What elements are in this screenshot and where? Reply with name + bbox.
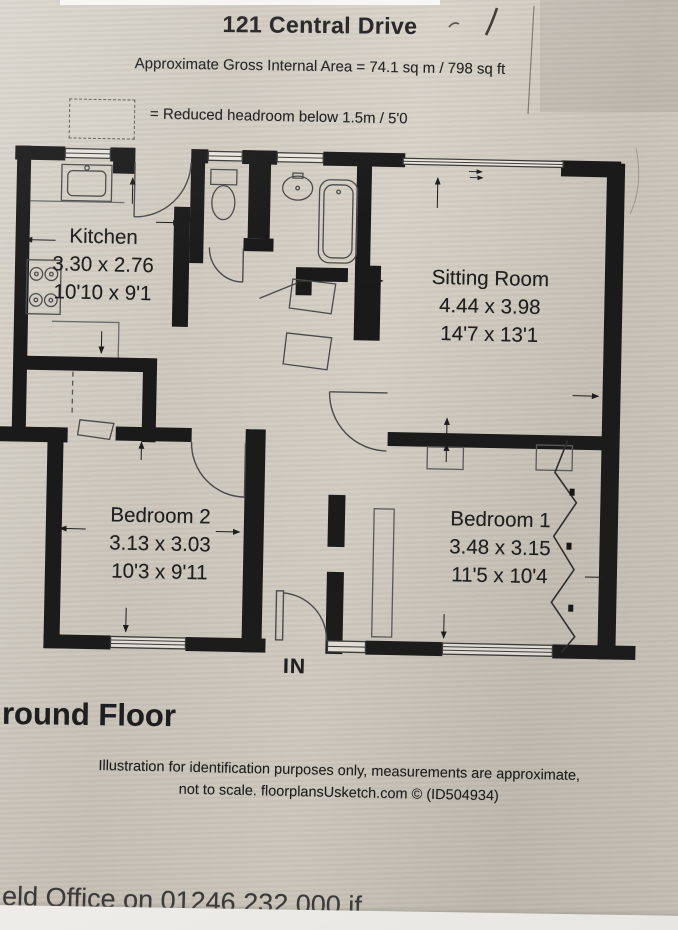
door-arc (283, 593, 328, 641)
entrance-door (276, 591, 284, 640)
room-name: Bedroom 2 (73, 501, 249, 533)
room-label-bedroom-1: Bedroom 1 3.48 x 3.15 11'5 x 10'4 (412, 505, 589, 592)
door-arc (190, 442, 245, 497)
counter-edge (51, 321, 119, 357)
room-label-sitting-room: Sitting Room 4.44 x 3.98 14'7 x 13'1 (401, 263, 578, 350)
opening-dash (72, 372, 73, 414)
room-label-bedroom-2: Bedroom 2 3.13 x 3.03 10'3 x 9'11 (72, 501, 249, 588)
room-size-imperial: 10'10 x 9'1 (17, 278, 188, 309)
floorplan-photo: 121 Central Drive Approximate Gross Inte… (0, 0, 678, 930)
room-size-metric: 3.13 x 3.03 (72, 529, 248, 561)
entrance-label: IN (283, 655, 306, 679)
room-size-metric: 3.30 x 2.76 (18, 250, 189, 281)
room-size-imperial: 14'7 x 13'1 (401, 319, 577, 351)
hair-line (630, 148, 639, 214)
disclaimer: Illustration for identification purposes… (9, 753, 670, 811)
pen-squiggle (449, 23, 459, 27)
crease-line (528, 6, 534, 114)
door-arc (209, 247, 244, 282)
door-leaf (330, 392, 388, 393)
room-size-imperial: 11'5 x 10'4 (412, 560, 588, 592)
slash-pen-mark (486, 8, 497, 35)
door-leaf (243, 248, 244, 282)
room-size-metric: 4.44 x 3.98 (402, 291, 578, 323)
floor-name-label: round Floor (2, 696, 176, 734)
room-name: Bedroom 1 (413, 505, 589, 537)
pen-marks (0, 0, 678, 240)
room-size-imperial: 10'3 x 9'11 (72, 557, 248, 589)
door-arc (328, 392, 387, 451)
room-size-metric: 3.48 x 3.15 (412, 533, 588, 565)
room-name: Sitting Room (403, 263, 579, 295)
